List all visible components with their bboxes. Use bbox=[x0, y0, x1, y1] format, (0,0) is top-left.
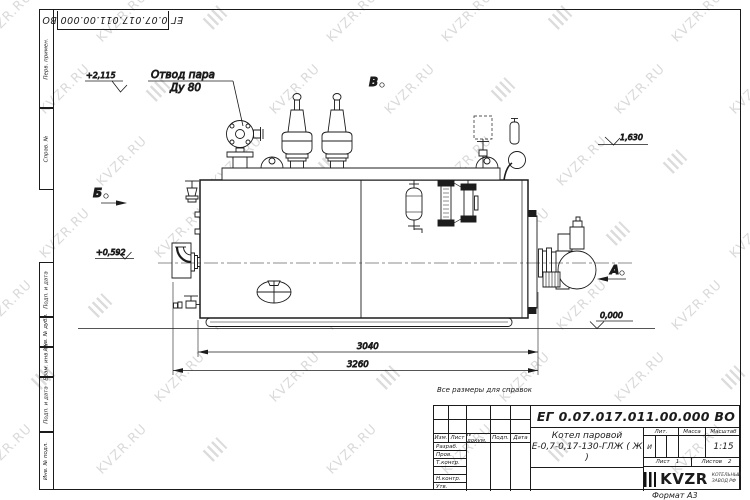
view-label-b: Б bbox=[93, 186, 127, 206]
top-doc-number: ЕГ 0.07.017.011.00.000 ВО bbox=[42, 14, 183, 25]
safety-valve-right bbox=[322, 94, 352, 169]
tb-col-data bbox=[511, 443, 531, 491]
tb-mass-header: Масса bbox=[679, 428, 706, 436]
lifting-lug-right bbox=[476, 157, 498, 168]
drain-valve bbox=[174, 296, 201, 308]
svg-text:3260: 3260 bbox=[347, 360, 369, 370]
skid-runner bbox=[206, 318, 512, 327]
tb-header-podp: Подп. bbox=[491, 434, 511, 443]
tb-row-nkontr: Н.контр. bbox=[434, 475, 467, 483]
steam-outlet-callout: Отвод пара Ду 80 bbox=[148, 69, 243, 126]
tb-product-line2: Е-0,7-0,17-130-ГЛЖ ( Ж ) bbox=[531, 442, 643, 465]
reference-note: Все размеры для справок bbox=[437, 386, 532, 394]
tb-col-dokum bbox=[467, 443, 491, 491]
side-column-vzam-inv: Взам. инв. № bbox=[39, 347, 54, 377]
burner-unit bbox=[539, 217, 597, 289]
manhole bbox=[257, 281, 291, 303]
svg-text:В: В bbox=[369, 75, 378, 89]
tb-header-data: Дата bbox=[511, 434, 531, 443]
view-label-v: В bbox=[369, 75, 384, 89]
tb-empty-cell bbox=[491, 406, 511, 420]
lifting-lug-left bbox=[261, 157, 283, 168]
format-label: Формат А3 bbox=[652, 491, 698, 500]
tb-row-blank bbox=[434, 467, 467, 475]
side-column-inv-podl: Инв. № подл. bbox=[39, 432, 54, 490]
tb-empty-cell bbox=[511, 420, 531, 434]
steam-outlet-valve bbox=[227, 121, 264, 169]
drawing-sheet: KVZR.RUKVZR.RUKVZR.RUKVZR.RUKVZR.RUKVZR.… bbox=[0, 0, 750, 500]
tb-empty-cell bbox=[449, 420, 467, 434]
tb-sheets-cell: Листов2 bbox=[692, 458, 741, 467]
tb-lit-cell-2 bbox=[656, 436, 667, 458]
tb-row-utv: Утв. bbox=[434, 483, 467, 491]
tb-empty-cell bbox=[449, 406, 467, 420]
side-column-sprav-no: Справ. № bbox=[39, 108, 54, 190]
kvzr-logo-subtext: КОТЕЛЬНЫЙ ЗАВОД РФ bbox=[712, 473, 741, 485]
svg-text:Б: Б bbox=[93, 186, 102, 200]
inlet-elbow bbox=[172, 243, 200, 278]
tb-scale-header: Масштаб bbox=[706, 428, 741, 436]
safety-valve-left bbox=[282, 94, 312, 169]
tb-empty-cell bbox=[491, 420, 511, 434]
rear-tube-plate bbox=[528, 211, 537, 314]
tb-product-line1: Котел паровой bbox=[552, 431, 623, 442]
left-top-valve bbox=[185, 181, 199, 202]
tb-empty-cell bbox=[467, 406, 491, 420]
left-wall-stub-2 bbox=[195, 229, 200, 234]
tb-lit-value: И bbox=[644, 436, 656, 458]
elevation-ground: 0,000 bbox=[590, 311, 633, 329]
tb-empty-bottom-cell bbox=[531, 468, 644, 491]
tb-col-podp bbox=[491, 443, 511, 491]
kvzr-logo-word: KVZR bbox=[660, 470, 708, 488]
tb-empty-cell bbox=[467, 420, 491, 434]
title-block: Изм. Лист N докум. Подп. Дата Разраб. Пр… bbox=[433, 405, 740, 490]
tb-lit-cell-3 bbox=[667, 436, 679, 458]
tb-lit-header: Лит. bbox=[644, 428, 679, 436]
boiler-body bbox=[200, 180, 528, 318]
top-doc-number-box: ЕГ 0.07.017.011.00.000 ВО bbox=[57, 11, 169, 30]
tb-row-prov: Пров. bbox=[434, 451, 467, 459]
elevation-valves-top: +2,115 bbox=[85, 71, 127, 92]
tb-empty-cell bbox=[434, 420, 449, 434]
elevation-gauge-level: 1,630 bbox=[598, 133, 648, 145]
svg-text:+2,115: +2,115 bbox=[86, 71, 116, 80]
svg-text:3040: 3040 bbox=[357, 342, 379, 352]
tb-header-izm: Изм. bbox=[434, 434, 449, 443]
kvzr-logo-icon bbox=[644, 472, 656, 487]
view-label-a: А bbox=[597, 263, 626, 282]
tb-sheet-cell: Лист1 bbox=[644, 458, 692, 467]
side-column-perv-primen: Перв. примен. bbox=[39, 9, 54, 108]
tb-row-tkontr: Т.контр. bbox=[434, 459, 467, 467]
side-column-podp-data-2: Подп. и дата bbox=[39, 377, 54, 432]
tb-header-list: Лист bbox=[449, 434, 467, 443]
left-wall-stub-1 bbox=[195, 212, 200, 217]
tb-scale-value: 1:15 bbox=[706, 436, 741, 458]
callout-leader-line bbox=[233, 81, 243, 126]
side-column-podp-data-1: Подп. и дата bbox=[39, 262, 54, 317]
tb-product-name: Котел паровой Е-0,7-0,17-130-ГЛЖ ( Ж ) bbox=[531, 428, 644, 468]
tb-logo-cell: KVZR КОТЕЛЬНЫЙ ЗАВОД РФ bbox=[644, 467, 741, 491]
tb-doc-number: ЕГ 0.07.017.011.00.000 ВО bbox=[531, 406, 741, 428]
tb-empty-cell bbox=[434, 406, 449, 420]
tb-mass-value bbox=[679, 436, 706, 458]
tb-empty-cell bbox=[511, 406, 531, 420]
callout-line1: Отвод пара bbox=[151, 69, 215, 81]
top-platform bbox=[222, 168, 500, 180]
svg-text:1,630: 1,630 bbox=[620, 133, 643, 142]
tb-header-dokum: N докум. bbox=[467, 434, 491, 443]
tb-row-razrab: Разраб. bbox=[434, 443, 467, 451]
elevation-inlet-level: +0,592 bbox=[95, 248, 134, 259]
svg-text:А: А bbox=[609, 263, 619, 277]
callout-line2: Ду 80 bbox=[169, 82, 201, 94]
svg-text:0,000: 0,000 bbox=[600, 311, 623, 320]
